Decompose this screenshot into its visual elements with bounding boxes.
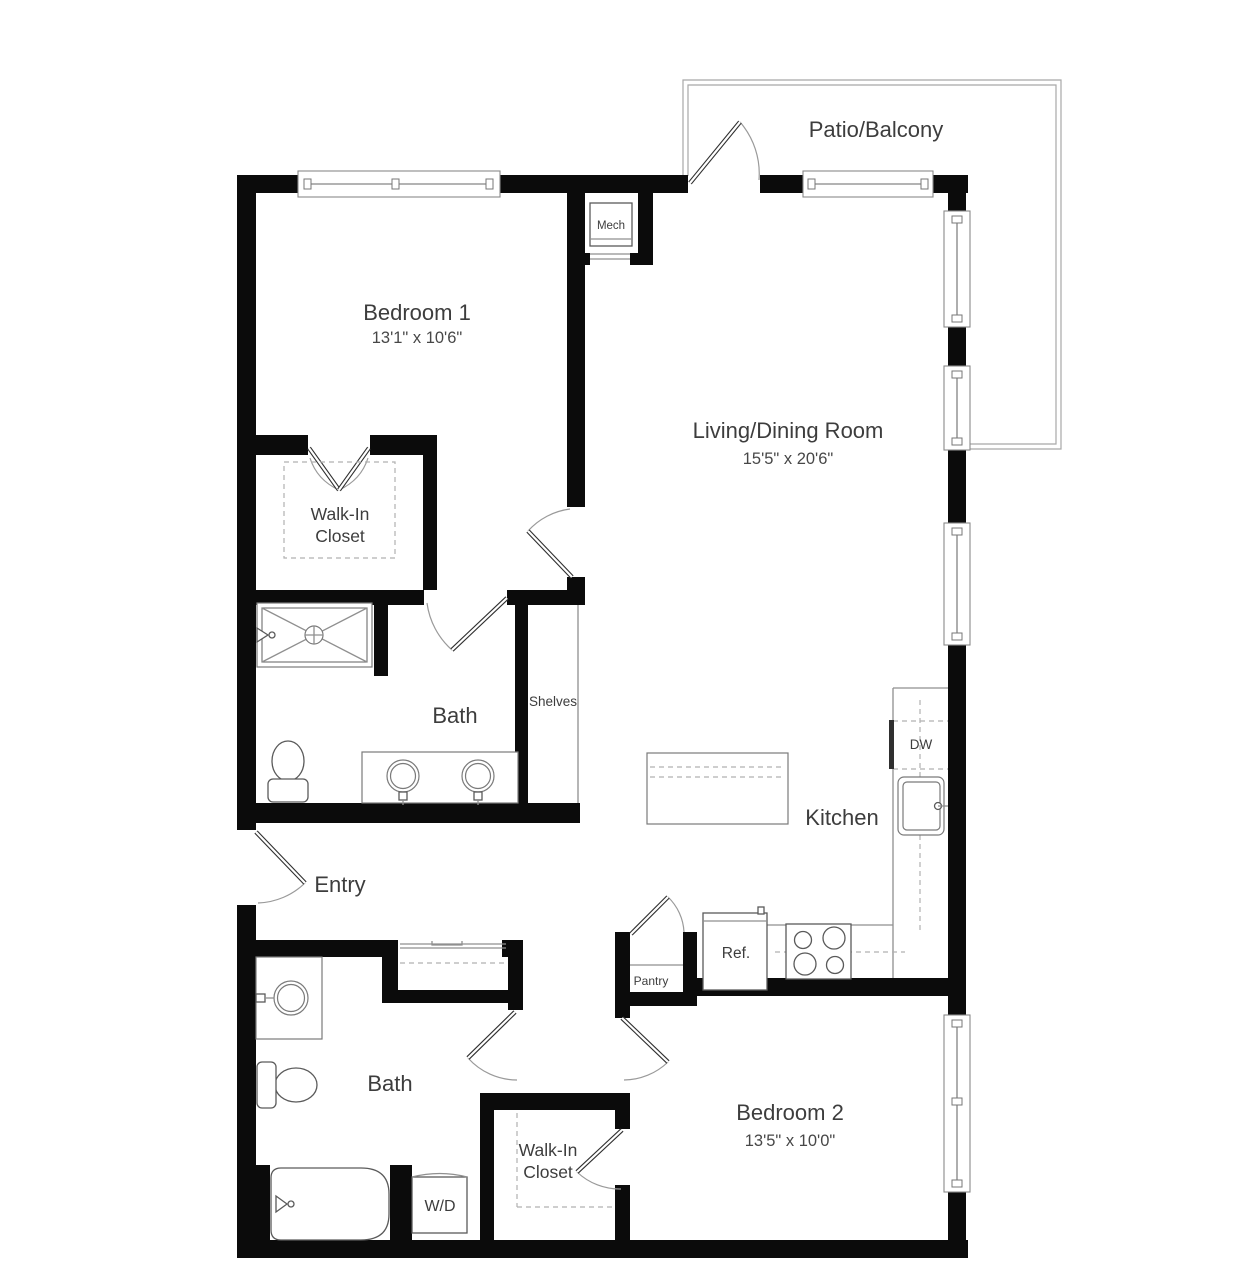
- kitchen-fixtures: [590, 203, 948, 990]
- bedroom1-dims: 13'1" x 10'6": [372, 329, 463, 347]
- patio-door: [690, 122, 759, 183]
- wd-label: W/D: [424, 1198, 455, 1215]
- window-patio: [803, 171, 933, 197]
- kitchen-island: [647, 753, 788, 824]
- window-living-3: [944, 523, 970, 645]
- patio-label: Patio/Balcony: [809, 117, 944, 142]
- bath1-label: Bath: [432, 703, 477, 728]
- toilet-bath2: [257, 1062, 317, 1108]
- living-dining-label: Living/Dining Room: [693, 418, 884, 443]
- pantry-door: [631, 897, 684, 934]
- entry-door: [256, 832, 305, 903]
- kitchen-label: Kitchen: [805, 805, 878, 830]
- bedroom1-door: [528, 509, 572, 577]
- shower: [257, 603, 372, 667]
- bathtub: [271, 1168, 389, 1240]
- dw-label: DW: [910, 737, 933, 752]
- bedroom2-dims: 13'5" x 10'0": [745, 1132, 836, 1150]
- walk-in-closet2-text: Walk-In Closet: [494, 1139, 602, 1203]
- mech-closet-opening: [590, 254, 630, 259]
- bedroom2-door: [622, 1018, 668, 1080]
- walk-in-closet1-doors: [309, 448, 369, 490]
- vanity-bath2: [256, 957, 322, 1039]
- walk-in-closet2-label: Walk-In Closet: [494, 1139, 602, 1203]
- entry-label: Entry: [314, 872, 365, 897]
- dishwasher-door-edge: [889, 720, 894, 769]
- mech-label: Mech: [597, 220, 625, 232]
- stove: [786, 924, 851, 979]
- bath2-label: Bath: [367, 1071, 412, 1096]
- kitchen-sink: [898, 777, 948, 835]
- window-living-1: [944, 211, 970, 327]
- bath1-door: [427, 598, 507, 650]
- walk-in-closet1-label: Walk-In Closet: [287, 503, 393, 567]
- vanity-bath1: [362, 752, 518, 805]
- shelves-label: Shelves: [529, 694, 577, 709]
- living-dining-dims: 15'5" x 20'6": [743, 450, 834, 468]
- window-bedroom2: [944, 1015, 970, 1192]
- coat-closet-rod: [400, 941, 506, 963]
- ref-label: Ref.: [722, 945, 750, 962]
- walk-in-closet1-text: Walk-In Closet: [287, 503, 393, 567]
- window-living-2: [944, 366, 970, 450]
- closet-details: [284, 254, 683, 1207]
- window-bedroom1: [298, 171, 500, 197]
- walls: [237, 175, 968, 1258]
- floor-plan-drawing: Patio/Balcony Bedroom 1 13'1" x 10'6" Li…: [0, 0, 1233, 1282]
- floor-plan-page: Patio/Balcony Bedroom 1 13'1" x 10'6" Li…: [0, 0, 1233, 1282]
- toilet-bath1: [268, 741, 308, 802]
- bedroom2-label: Bedroom 2: [736, 1100, 844, 1125]
- bedroom1-label: Bedroom 1: [363, 300, 471, 325]
- bath2-door: [468, 1012, 517, 1080]
- pantry-label: Pantry: [634, 974, 669, 988]
